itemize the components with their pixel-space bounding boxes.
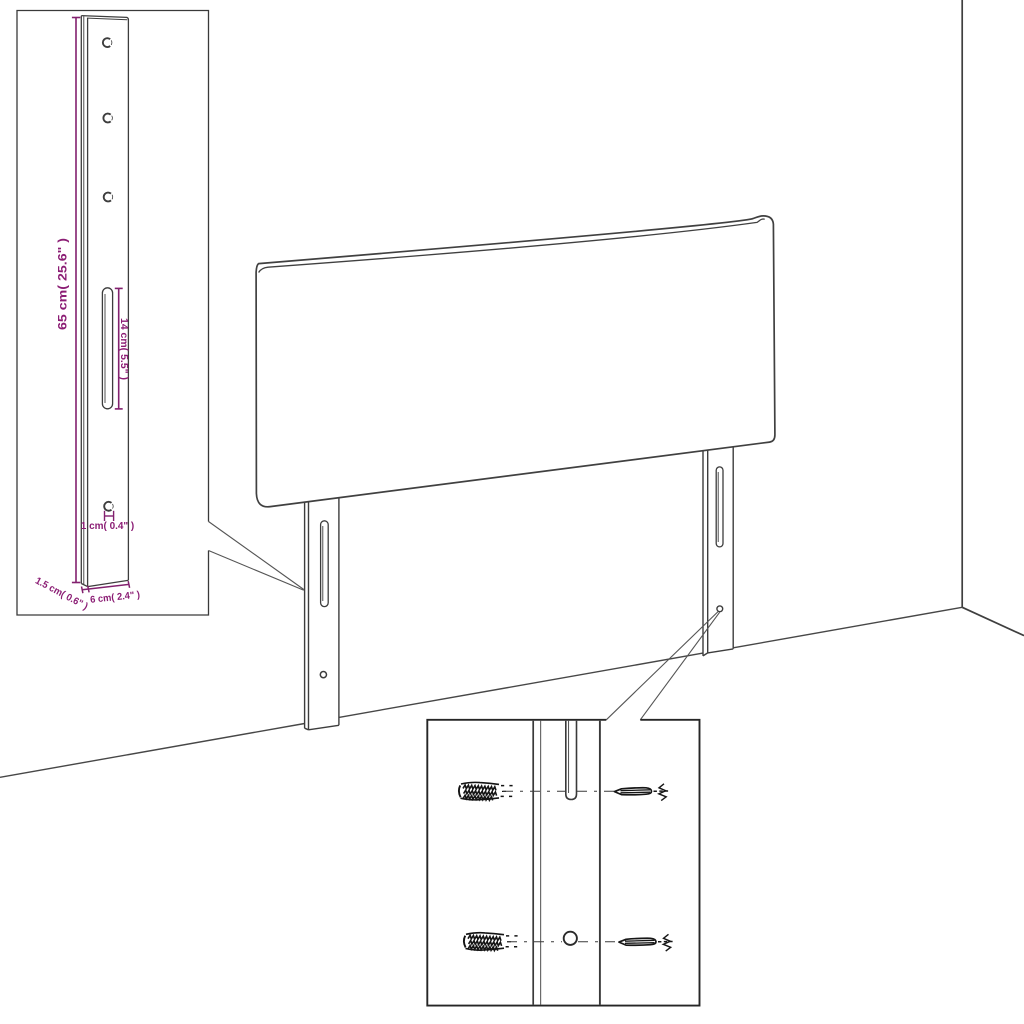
svg-text:1 cm( 0.4" ): 1 cm( 0.4" ) — [81, 521, 135, 532]
svg-text:14 cm( 5.5" ): 14 cm( 5.5" ) — [118, 318, 129, 380]
svg-text:65 cm( 25.6" ): 65 cm( 25.6" ) — [56, 238, 70, 330]
